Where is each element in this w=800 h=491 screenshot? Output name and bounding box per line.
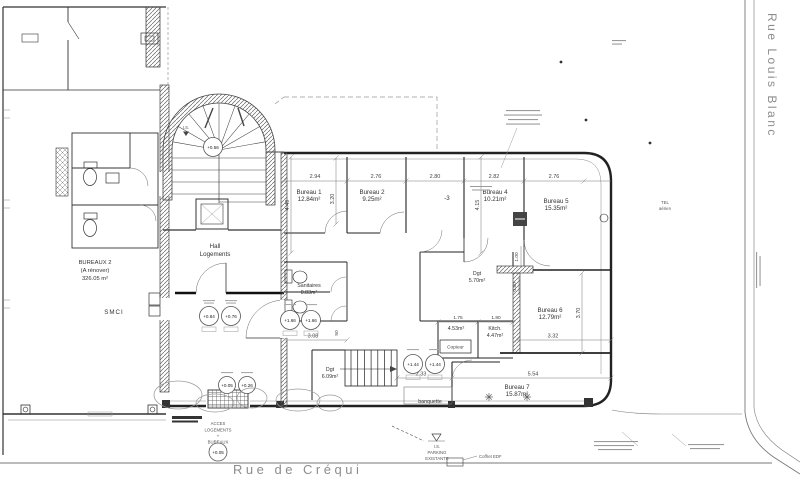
svg-text:2.76: 2.76 (549, 174, 560, 180)
street-label-bottom: Rue de Créqui (233, 462, 362, 477)
spiral-staircase (163, 94, 284, 205)
svg-text:1.75: 1.75 (453, 315, 463, 321)
level-marker-ent-b: +0.26 (239, 372, 256, 394)
bureau1-name: Bureau 1 (296, 189, 322, 196)
svg-text:+1.66: +1.66 (284, 318, 296, 323)
level-marker-hall-b: +0.76 (222, 300, 241, 332)
acces-l2: LOGEMENTS (205, 428, 232, 433)
bureau7-area: 15.87m² (506, 391, 529, 398)
dgt-lower-name: Dgt (326, 367, 335, 373)
left-building (3, 0, 347, 455)
hall-labels: Hall Logements (200, 243, 231, 258)
level-marker-hall-a: +0.84 (200, 300, 219, 332)
annotations: ACCES LOGEMENTS + BUREAUX I.S. PARKING E… (172, 40, 761, 466)
sanitaires-name: Sanitaires (297, 283, 321, 289)
is-label: I.S. (183, 125, 189, 130)
svg-text:3.08: 3.08 (308, 334, 319, 340)
banquette-label: banquette (418, 399, 442, 405)
tel-label-1: TEL (661, 200, 669, 205)
svg-text:0.80: 0.80 (512, 282, 518, 292)
bureau1-area: 12.84m² (298, 196, 321, 203)
bureaux2-status: (A rénover) (81, 268, 110, 274)
office-block (162, 153, 611, 408)
parking-l3: EXISTANTE (425, 456, 449, 461)
hall-label-2: Logements (200, 251, 231, 258)
level-marker-stair: +0.56 (204, 138, 223, 157)
curb-office-to-street (612, 410, 742, 414)
bureaux2-name: BUREAUX 2 (79, 260, 112, 266)
left-building-labels: BUREAUX 2 (A rénover) 326.05 m² SMCI (79, 260, 124, 316)
svg-text:3.70: 3.70 (576, 308, 582, 319)
svg-text:4.15: 4.15 (475, 200, 481, 211)
svg-text:3.32: 3.32 (548, 334, 559, 340)
storage-area: 4.53m² (448, 326, 465, 332)
svg-text:+0.26: +0.26 (241, 383, 253, 388)
svg-text:+0.05: +0.05 (212, 450, 224, 455)
bureau5-area: 15.35m² (545, 205, 568, 212)
entrance-sign (172, 416, 202, 423)
level-marker-stair-b: +1.44 (426, 349, 445, 380)
level-marker-ent-a: +0.05 (219, 372, 236, 394)
parking-l2: PARKING (427, 450, 447, 455)
bureau6-name: Bureau 6 (537, 307, 563, 314)
svg-text:+1.66: +1.66 (305, 318, 317, 323)
street-label-right: Rue Louis Blanc (765, 13, 779, 138)
bureau4-area: 10.21m² (484, 196, 507, 203)
svg-text:5.54: 5.54 (528, 372, 539, 378)
parking-l1: I.S. (434, 444, 440, 449)
acces-l4: BUREAUX (208, 440, 229, 445)
level-marker-street: +0.05 (209, 443, 227, 461)
svg-text:1.00: 1.00 (514, 252, 520, 262)
svg-text:1.80: 1.80 (491, 315, 501, 321)
hall-label-1: Hall (210, 243, 221, 250)
svg-text:+1.44: +1.44 (429, 362, 441, 367)
svg-text:2.82: 2.82 (489, 174, 500, 180)
bureau6-area: 12.79m² (539, 314, 562, 321)
svg-text:+1.44: +1.44 (407, 362, 419, 367)
acces-l1: ACCES (211, 421, 226, 426)
dgt-upper-area: 5.70m² (469, 278, 486, 284)
svg-text:2.94: 2.94 (310, 174, 321, 180)
svg-text:50: 50 (334, 330, 340, 336)
copieur-label: Copieur (447, 345, 464, 351)
dgt-lower-area: 6.09m² (322, 374, 339, 380)
svg-text:+0.56: +0.56 (207, 145, 219, 150)
level-markers: +0.56 +0.84 +0.76 +1.66 +1.66 (200, 138, 445, 462)
svg-text:+0.76: +0.76 (225, 314, 237, 319)
bureau3-name: -3 (444, 195, 450, 202)
bureaux2-area: 326.05 m² (82, 276, 108, 282)
svg-text:4.49: 4.49 (285, 200, 291, 211)
kitch-name: Kitch. (488, 326, 501, 332)
tel-label-2: aérien (659, 206, 672, 211)
office-outline (166, 153, 611, 406)
level-marker-san-b: +1.66 (302, 304, 321, 336)
bureau2-name: Bureau 2 (359, 189, 385, 196)
svg-text:+0.05: +0.05 (221, 383, 233, 388)
floor-plan: Rue de Créqui Rue Louis Blanc (0, 0, 800, 491)
dgt-upper-name: Dgt (473, 271, 482, 277)
svg-text:3.20: 3.20 (330, 194, 336, 205)
terrace-dashed-outline (275, 97, 437, 152)
bureau5-name: Bureau 5 (543, 198, 569, 205)
straight-stair (340, 350, 397, 386)
smci-label: SMCI (104, 309, 123, 316)
svg-text:2.80: 2.80 (430, 174, 441, 180)
svg-text:2.76: 2.76 (371, 174, 382, 180)
bureau7-name: Bureau 7 (504, 384, 530, 391)
acces-l3: + (217, 434, 220, 439)
streets (0, 0, 800, 474)
office-inner-offset (290, 159, 601, 374)
sanitaires-area: 8.83m² (301, 290, 318, 296)
coffret-label: Coffret EDF (479, 454, 502, 459)
bureau2-area: 9.25m² (362, 196, 381, 203)
svg-text:+0.84: +0.84 (203, 314, 215, 319)
level-marker-stair-a: +1.44 (404, 349, 423, 380)
kitch-area: 4.47m² (487, 333, 504, 339)
